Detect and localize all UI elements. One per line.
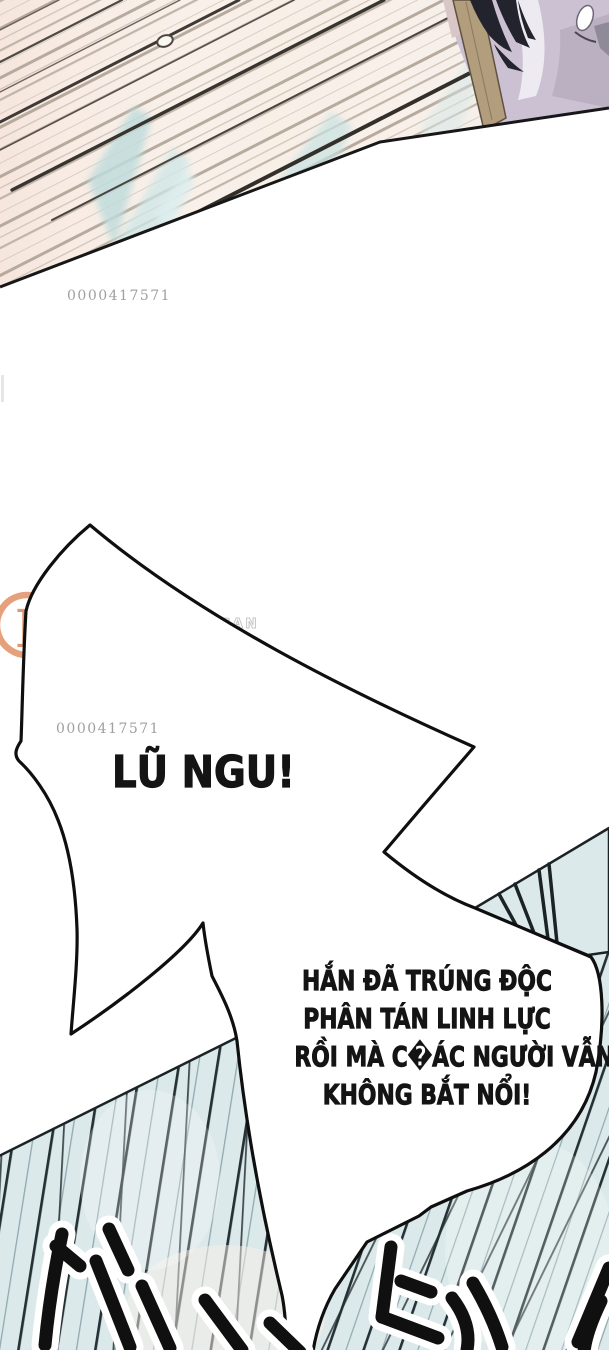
- scan-artifact-tick: [1, 375, 4, 402]
- watermark-id-top: 0000417571: [67, 288, 171, 304]
- dialogue-line: KHÔNG BẮT NỔI!: [294, 1076, 559, 1114]
- dialogue-block: HẮN ĐÃ TRÚNG ĐỘC PHÂN TÁN LINH LỰC RỒI M…: [294, 962, 559, 1114]
- dialogue-line: RỒI MÀ C�ÁC NGƯỜI VẪN: [294, 1038, 559, 1076]
- dialogue-line: PHÂN TÁN LINH LỰC: [294, 1000, 559, 1038]
- shout-text: LŨ NGU!: [112, 747, 288, 798]
- artwork-layer: [0, 0, 609, 1350]
- top-panel: [0, 0, 609, 290]
- comic-page: T'S SCAN R: [0, 0, 609, 1350]
- watermark-id-middle: 0000417571: [56, 721, 160, 737]
- dialogue-line: HẮN ĐÃ TRÚNG ĐỘC: [294, 962, 559, 1000]
